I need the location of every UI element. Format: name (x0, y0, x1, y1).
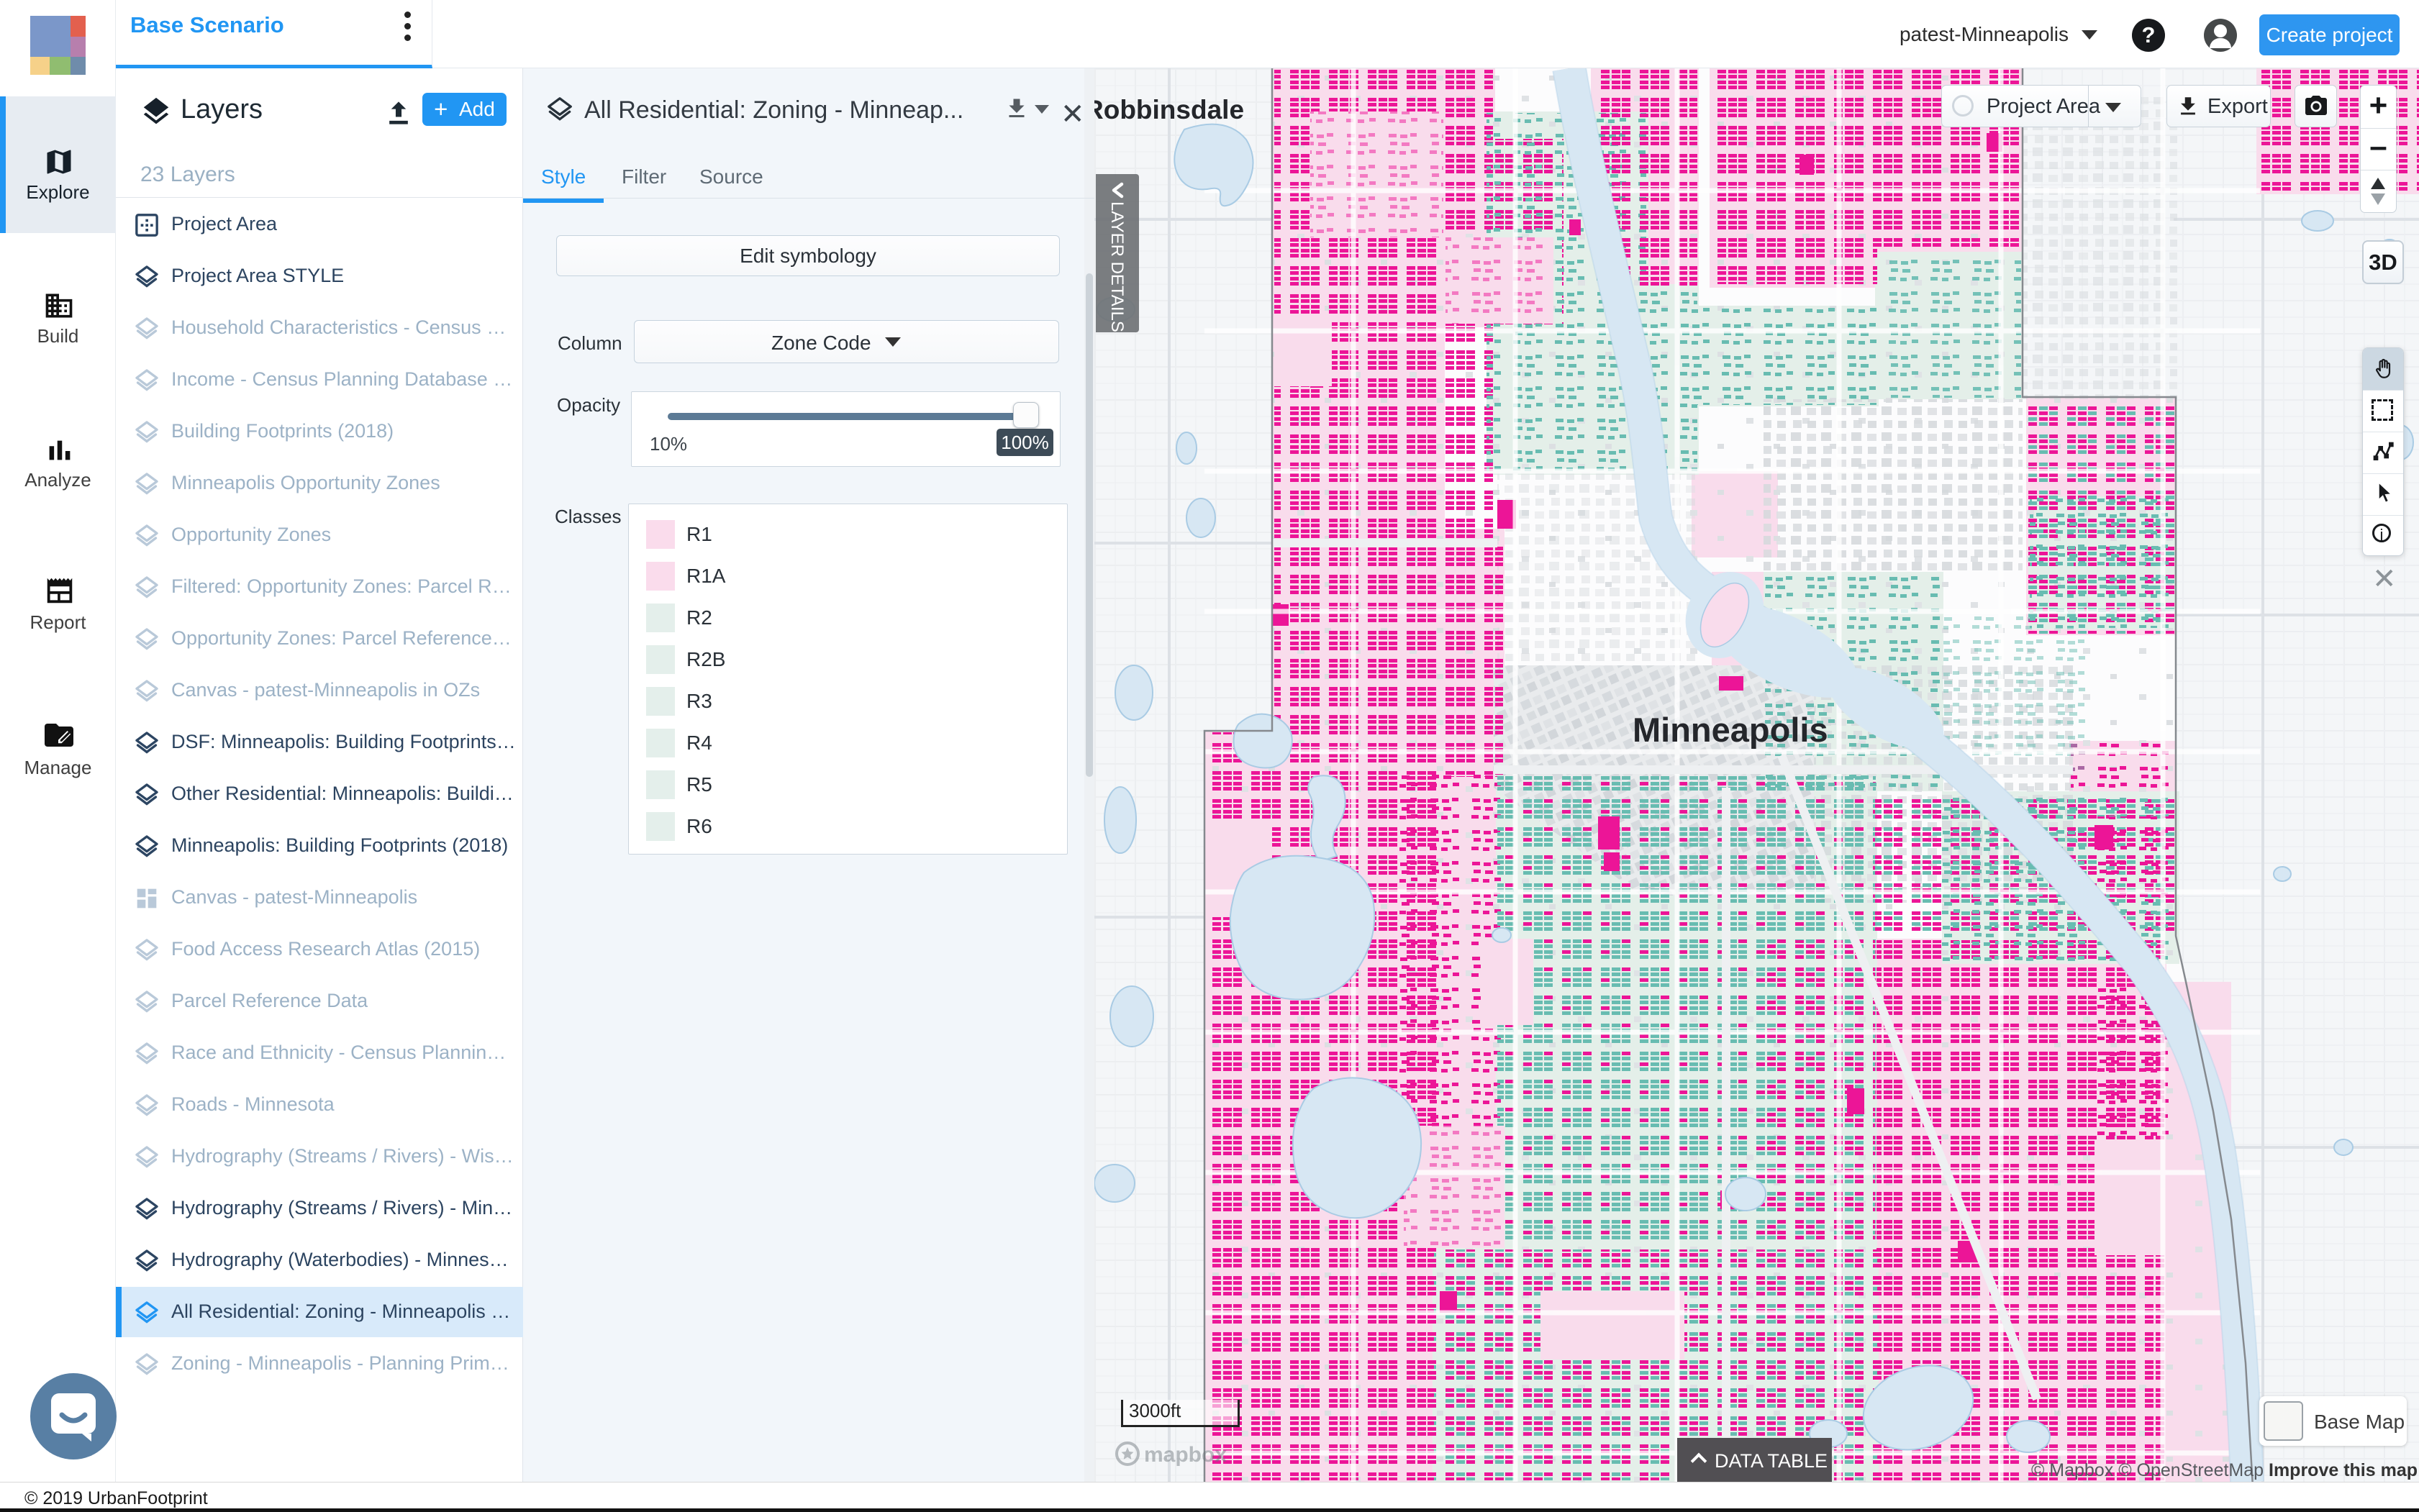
svg-text:mapbox: mapbox (1144, 1443, 1227, 1467)
svg-text:Robbinsdale: Robbinsdale (1094, 95, 1244, 124)
svg-text:Minneapolis: Minneapolis (1633, 711, 1828, 749)
svg-text:LAYER DETAILS: LAYER DETAILS (1107, 201, 1127, 332)
